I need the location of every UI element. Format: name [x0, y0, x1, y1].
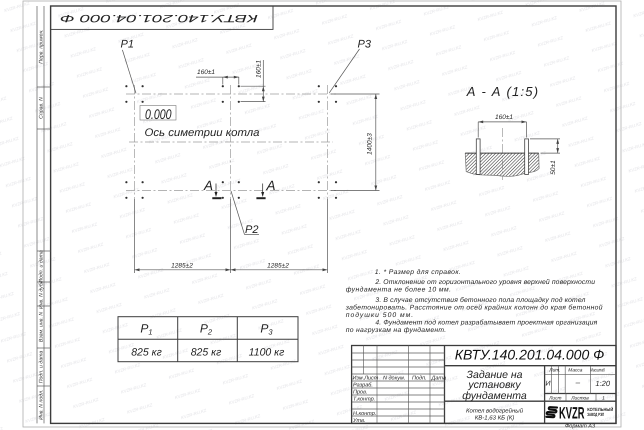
- svg-text:P3: P3: [358, 39, 372, 51]
- svg-text:Формат А3: Формат А3: [565, 423, 596, 429]
- svg-text:825 кг: 825 кг: [131, 346, 162, 358]
- svg-text:A: A: [203, 178, 213, 193]
- svg-text:Взам. инв. N: Взам. инв. N: [39, 312, 45, 342]
- svg-text:А - А (1:5): А - А (1:5): [466, 84, 539, 99]
- svg-text:–: –: [575, 378, 581, 387]
- svg-text:КВТУ.140.201.04.000 Ф: КВТУ.140.201.04.000 Ф: [455, 347, 605, 363]
- svg-text:Перв. примен.: Перв. примен.: [39, 29, 45, 63]
- svg-text:160±1: 160±1: [495, 114, 513, 121]
- svg-text:Разраб.: Разраб.: [353, 382, 373, 389]
- svg-text:Листов: Листов: [570, 396, 589, 402]
- svg-text:Ось симетрии котла: Ось симетрии котла: [145, 127, 260, 139]
- svg-text:Инв. N подл.: Инв. N подл.: [39, 390, 45, 420]
- svg-text:4. Фундамент под котел разраба: 4. Фундамент под котел разрабатывает про…: [375, 320, 597, 327]
- svg-text:160±1: 160±1: [256, 60, 263, 78]
- svg-text:Н.контр.: Н.контр.: [353, 411, 376, 417]
- svg-text:ЗАВОД РЭП: ЗАВОД РЭП: [587, 412, 604, 417]
- svg-text:Лист: Лист: [548, 396, 561, 402]
- svg-text:A: A: [265, 178, 275, 193]
- svg-text:по нагрузкам на фундамент.: по нагрузкам на фундамент.: [346, 327, 447, 334]
- svg-text:1285±2: 1285±2: [267, 262, 289, 269]
- svg-text:50±1: 50±1: [550, 160, 557, 175]
- svg-text:Подп. и дата: Подп. и дата: [39, 250, 45, 283]
- svg-text:забетонировать. Расстояние от: забетонировать. Расстояние от осей крайн…: [345, 304, 603, 312]
- svg-text:N докум.: N докум.: [383, 375, 405, 381]
- svg-text:1285±2: 1285±2: [171, 262, 193, 269]
- svg-text:Инв. N дубл.: Инв. N дубл.: [39, 279, 45, 309]
- svg-text:фундамента не более 10 мм.: фундамента не более 10 мм.: [346, 287, 451, 294]
- svg-text:1100 кг: 1100 кг: [249, 346, 285, 358]
- svg-text:КВТУ.140.201.04.000 Ф: КВТУ.140.201.04.000 Ф: [60, 12, 258, 24]
- svg-text:P1: P1: [121, 39, 134, 51]
- svg-text:Подп.: Подп.: [412, 375, 427, 381]
- svg-text:1400±3: 1400±3: [367, 133, 374, 155]
- svg-text:3. В случае отсутствия бетонно: 3. В случае отсутствия бетонного пола пл…: [375, 297, 585, 304]
- svg-text:Лит.: Лит.: [548, 368, 560, 374]
- svg-text:160±1: 160±1: [197, 69, 215, 76]
- svg-text:Т.контр.: Т.контр.: [353, 397, 375, 403]
- svg-text:Утв.: Утв.: [352, 418, 366, 424]
- svg-text:1:20: 1:20: [595, 379, 610, 388]
- svg-text:2. Отклонение от горизонтально: 2. Отклонение от горизонтального уровня …: [374, 278, 595, 286]
- svg-text:0.000: 0.000: [145, 106, 172, 122]
- svg-text:Изм.Лист: Изм.Лист: [353, 375, 379, 381]
- svg-text:Справ. N: Справ. N: [39, 97, 45, 119]
- svg-text:1: 1: [602, 396, 605, 402]
- svg-text:KVZR: KVZR: [559, 404, 585, 422]
- svg-text:Подп. и дата: Подп. и дата: [39, 351, 45, 384]
- svg-text:1. * Размер для справок.: 1. * Размер для справок.: [375, 269, 461, 276]
- svg-text:подушки 500 мм.: подушки 500 мм.: [346, 312, 414, 319]
- svg-text:825 кг: 825 кг: [191, 346, 222, 358]
- svg-text:КВ-1,63 КБ (К): КВ-1,63 КБ (К): [475, 414, 515, 421]
- svg-text:фундамента: фундамента: [462, 390, 527, 402]
- svg-text:Дата: Дата: [431, 375, 447, 381]
- svg-text:Масштаб: Масштаб: [590, 368, 605, 374]
- svg-text:Котел водогрейный: Котел водогрейный: [466, 407, 524, 414]
- svg-text:Пров.: Пров.: [353, 390, 368, 396]
- svg-text:Масса: Масса: [568, 368, 583, 374]
